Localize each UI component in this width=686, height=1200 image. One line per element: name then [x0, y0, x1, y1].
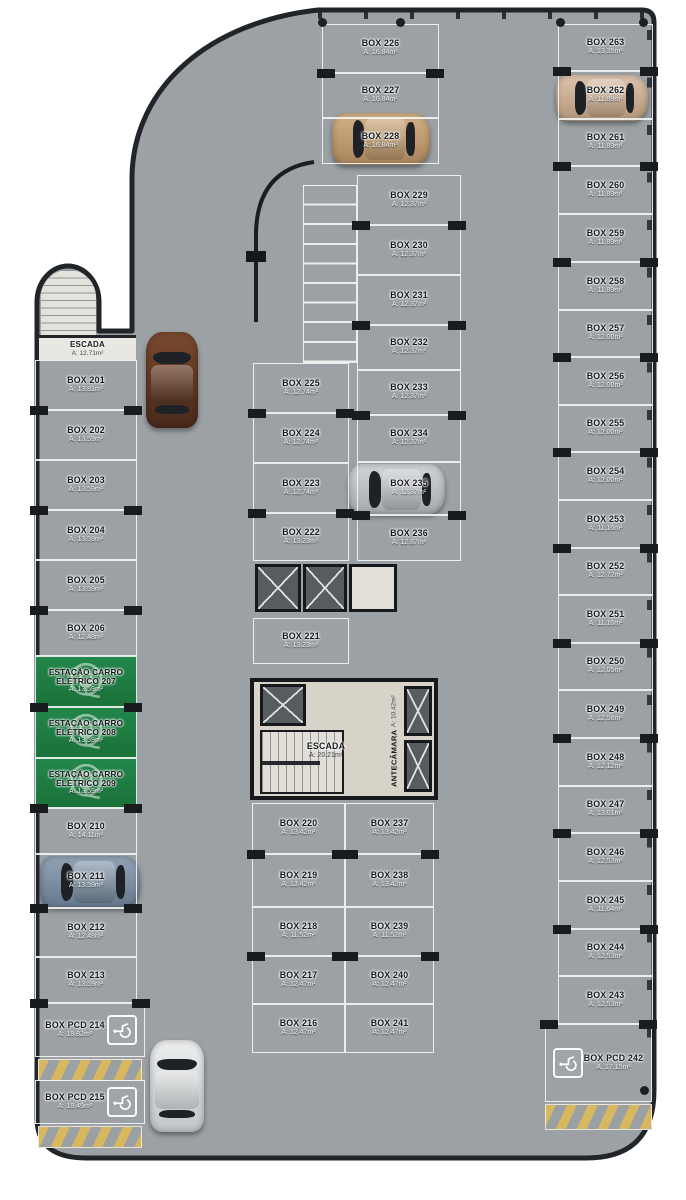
stall-area: A: 16.84m² — [363, 142, 397, 150]
stall-label: BOX 210 — [67, 822, 105, 832]
car-brown — [146, 332, 198, 428]
stall-text: BOX PCD 215A: 19.49m² — [43, 1093, 107, 1111]
stall-text: BOX 244A: 12.53m² — [587, 943, 625, 961]
parking-stall-225: BOX 225A: 12.74m² — [253, 363, 349, 413]
parking-stall-217: BOX 217A: 12.47m² — [252, 956, 345, 1004]
parking-stall-258: BOX 258A: 11.89m² — [558, 262, 653, 310]
stall-area: A: 13.59m² — [69, 981, 103, 989]
stall-area: A: 12.47m² — [281, 1029, 315, 1037]
stall-text: BOX 245A: 11.64m² — [587, 896, 625, 914]
stall-label: BOX 260 — [587, 181, 625, 191]
parking-stall-256: BOX 256A: 12.00m² — [558, 357, 653, 405]
stall-area: A: 12.00m² — [588, 382, 622, 390]
stall-area: A: 13.59m² — [69, 536, 103, 544]
parking-stall-244: BOX 244A: 12.53m² — [558, 929, 653, 976]
parking-stall-232: BOX 232A: 12.37m² — [357, 325, 461, 370]
parking-stall-242: BOX PCD 242A: 17.15m² — [545, 1024, 652, 1102]
car-glass — [153, 352, 191, 364]
stall-text: BOX 219A: 13.42m² — [280, 871, 318, 889]
stall-area: A: 13.59m² — [69, 486, 103, 494]
stall-area: A: 11.52m² — [282, 932, 316, 940]
stall-area: A: 12.37m² — [392, 348, 426, 356]
parking-stall-249: BOX 249A: 12.58m² — [558, 690, 653, 738]
stall-area: A: 13.59m² — [69, 686, 103, 694]
stall-text: BOX 256A: 12.00m² — [587, 372, 625, 390]
wheelchair-icon-box — [107, 1087, 137, 1117]
stall-label: BOX 232 — [390, 338, 428, 348]
stall-text: BOX 252A: 12.72m² — [587, 562, 625, 580]
antecamara: ANTECÂMARA A: 10.42m² — [382, 692, 406, 790]
parking-stall-261: BOX 261A: 11.89m² — [558, 119, 653, 166]
stall-text: BOX 213A: 13.59m² — [67, 971, 105, 989]
stall-label: BOX 250 — [587, 657, 625, 667]
stall-area: A: 11.89m² — [589, 96, 623, 104]
stall-text: BOX 247A: 13.01m² — [587, 800, 625, 818]
stall-text: BOX 257A: 12.00m² — [587, 324, 625, 342]
stall-label: BOX 235 — [390, 479, 428, 489]
column-block — [246, 251, 266, 262]
stall-text: BOX 235A: 12.37m² — [390, 479, 428, 497]
stall-label: BOX 263 — [587, 38, 625, 48]
stall-label: BOX 222 — [282, 528, 320, 538]
stall-area: A: 12.87m² — [392, 539, 426, 547]
parking-stall-247: BOX 247A: 13.01m² — [558, 786, 653, 833]
stall-area: A: 12.58m² — [588, 715, 622, 723]
stall-label: BOX 239 — [371, 922, 409, 932]
stall-text: BOX 232A: 12.37m² — [390, 338, 428, 356]
stall-area: A: 12.00m² — [588, 477, 622, 485]
car-white — [150, 1040, 204, 1132]
stall-area: A: 13.23m² — [284, 538, 318, 546]
stall-label: BOX PCD 214 — [45, 1021, 104, 1031]
parking-stall-210: BOX 210A: 14.11m² — [35, 808, 137, 854]
stall-text: BOX 230A: 12.37m² — [390, 241, 428, 259]
parking-stall-216: BOX 216A: 12.47m² — [252, 1004, 345, 1053]
parking-stall-228: BOX 228A: 16.84m² — [322, 118, 439, 164]
parking-stall-236: BOX 236A: 12.87m² — [357, 515, 461, 561]
stall-area: A: 13.59m² — [69, 586, 103, 594]
stall-text: BOX 218A: 11.52m² — [280, 922, 318, 940]
stall-area: A: 13.42m² — [281, 881, 315, 889]
stall-text: BOX 217A: 12.47m² — [280, 971, 318, 989]
stall-label: BOX 203 — [67, 476, 105, 486]
parking-stall-260: BOX 260A: 11.89m² — [558, 166, 653, 214]
car-glass — [155, 405, 189, 414]
stall-text: BOX 206A: 12.48m² — [67, 624, 105, 642]
stall-label: BOX 238 — [371, 871, 409, 881]
stall-text: BOX 233A: 12.37m² — [390, 383, 428, 401]
stall-text: BOX 261A: 11.89m² — [587, 133, 625, 151]
stall-label: BOX PCD 242 — [584, 1054, 643, 1064]
stall-area: A: 12.53m² — [588, 1001, 622, 1009]
stall-text: BOX 205A: 13.59m² — [67, 576, 105, 594]
garage-floor-plan: ESCADA A: 12.71m² ESCADA A: 20.21m² ANTE… — [0, 0, 686, 1200]
parking-stall-250: BOX 250A: 12.05m² — [558, 643, 653, 690]
stall-text: BOX 223A: 12.74m² — [282, 479, 320, 497]
stall-area: A: 12.47m² — [372, 981, 406, 989]
stall-label: BOX 245 — [587, 896, 625, 906]
stall-text: BOX 221A: 13.23m² — [282, 632, 320, 650]
core-escada-label: ESCADA — [276, 742, 376, 752]
stall-text: BOX 216A: 12.47m² — [280, 1019, 318, 1037]
wheelchair-icon — [112, 1092, 133, 1113]
stair-tower-landing: ESCADA A: 12.71m² — [39, 335, 136, 360]
wheelchair-icon — [112, 1020, 133, 1041]
stall-label: BOX 217 — [280, 971, 318, 981]
parking-stall-227: BOX 227A: 16.84m² — [322, 73, 439, 118]
stall-area: A: 19.82m² — [58, 1031, 92, 1039]
stall-text: BOX 248A: 12.12m² — [587, 753, 625, 771]
parking-stall-238: BOX 238A: 13.42m² — [345, 854, 434, 907]
stall-area: A: 11.64m² — [589, 906, 623, 914]
stall-text: BOX 262A: 11.89m² — [587, 86, 625, 104]
parking-stall-254: BOX 254A: 12.00m² — [558, 452, 653, 500]
parking-stall-223: BOX 223A: 12.74m² — [253, 463, 349, 513]
stall-area: A: 11.16m² — [589, 620, 623, 628]
core-escada: ESCADA A: 20.21m² — [276, 742, 376, 760]
hatched-no-parking-strip — [545, 1104, 652, 1130]
parking-stall-209: ESTAÇÃO CARRO ELÉTRICO 209A: 13.59m² — [35, 758, 137, 808]
stall-area: A: 12.37m² — [392, 393, 426, 401]
parking-stall-214: BOX PCD 214A: 19.82m² — [35, 1003, 145, 1057]
stall-label: BOX 234 — [390, 429, 428, 439]
stall-label: BOX 213 — [67, 971, 105, 981]
stall-label: BOX 223 — [282, 479, 320, 489]
stall-area: A: 12.72m² — [588, 572, 622, 580]
car-roof — [155, 1071, 199, 1109]
stall-label: BOX 254 — [587, 467, 625, 477]
machine-room — [349, 564, 397, 612]
stall-area: A: 13.01m² — [588, 810, 622, 818]
elevator-shaft — [404, 740, 432, 792]
stall-text: ESTAÇÃO CARRO ELÉTRICO 208A: 13.59m² — [40, 719, 132, 745]
stall-label: BOX 233 — [390, 383, 428, 393]
car-roof — [151, 365, 194, 404]
stall-area: A: 11.89m² — [589, 143, 623, 151]
parking-stall-235: BOX 235A: 12.37m² — [357, 462, 461, 515]
stall-text: BOX 236A: 12.87m² — [390, 529, 428, 547]
stall-area: A: 11.16m² — [589, 525, 623, 533]
stall-text: BOX 222A: 13.23m² — [282, 528, 320, 546]
pillar — [318, 18, 327, 27]
stall-text: BOX 211A: 13.59m² — [67, 872, 104, 890]
stall-area: A: 11.89m² — [589, 239, 623, 247]
stall-label: BOX 220 — [280, 819, 318, 829]
stall-label: BOX 249 — [587, 705, 625, 715]
parking-stall-253: BOX 253A: 11.16m² — [558, 500, 653, 548]
stall-area: A: 12.48m² — [69, 933, 103, 941]
stall-area: A: 16.84m² — [363, 49, 397, 57]
parking-stall-255: BOX 255A: 12.00m² — [558, 405, 653, 452]
parking-stall-240: BOX 240A: 12.47m² — [345, 956, 434, 1004]
stall-text: BOX 234A: 12.37m² — [390, 429, 428, 447]
stall-area: A: 11.52m² — [373, 932, 407, 940]
parking-stall-212: BOX 212A: 12.48m² — [35, 908, 137, 957]
stall-area: A: 12.00m² — [588, 429, 622, 437]
stall-label: ESTAÇÃO CARRO ELÉTRICO 207 — [40, 668, 132, 686]
stall-text: BOX 203A: 13.59m² — [67, 476, 105, 494]
parking-stall-226: BOX 226A: 16.84m² — [322, 24, 439, 73]
stall-area: A: 13.59m² — [69, 737, 103, 745]
stall-label: BOX 226 — [362, 39, 400, 49]
stall-area: A: 13.59m² — [69, 436, 103, 444]
stall-text: BOX 210A: 14.11m² — [67, 822, 105, 840]
stall-text: BOX 254A: 12.00m² — [587, 467, 625, 485]
stall-label: BOX 221 — [282, 632, 320, 642]
parking-stall-221: BOX 221A: 13.23m² — [253, 618, 349, 664]
stall-area: A: 12.37m² — [392, 251, 426, 259]
stall-label: BOX 252 — [587, 562, 625, 572]
parking-stall-203: BOX 203A: 13.59m² — [35, 460, 137, 510]
stall-area: A: 16.84m² — [363, 96, 397, 104]
stall-label: BOX 247 — [587, 800, 625, 810]
stall-label: BOX 205 — [67, 576, 105, 586]
stall-label: BOX 227 — [362, 86, 400, 96]
stall-area: A: 17.15m² — [596, 1064, 630, 1072]
parking-stall-259: BOX 259A: 11.89m² — [558, 214, 653, 262]
stall-label: BOX 237 — [371, 819, 409, 829]
stall-text: BOX 239A: 11.52m² — [371, 922, 409, 940]
stair-tower-label: ESCADA — [70, 341, 105, 350]
parking-stall-207: ESTAÇÃO CARRO ELÉTRICO 207A: 13.59m² — [35, 656, 137, 707]
stall-area: A: 12.05m² — [588, 667, 622, 675]
stall-label: BOX 243 — [587, 991, 625, 1001]
stall-label: ESTAÇÃO CARRO ELÉTRICO 209 — [40, 770, 132, 788]
parking-stall-231: BOX 231A: 12.37m² — [357, 275, 461, 325]
stall-text: BOX 226A: 16.84m² — [362, 39, 400, 57]
stall-label: BOX 204 — [67, 526, 105, 536]
top-wall-columns — [318, 12, 648, 19]
stall-text: BOX 243A: 12.53m² — [587, 991, 625, 1009]
stall-text: BOX 238A: 13.42m² — [371, 871, 409, 889]
stall-label: BOX 224 — [282, 429, 320, 439]
stair-tower — [41, 270, 96, 336]
stall-text: BOX PCD 214A: 19.82m² — [43, 1021, 107, 1039]
wheelchair-icon-box — [553, 1048, 583, 1078]
antecamara-label: ANTECÂMARA — [390, 729, 399, 786]
parking-stall-202: BOX 202A: 13.59m² — [35, 410, 137, 460]
stall-label: BOX 255 — [587, 419, 625, 429]
stall-label: BOX 229 — [390, 191, 428, 201]
stall-area: A: 13.42m² — [281, 829, 315, 837]
stall-area: A: 13.23m² — [284, 642, 318, 650]
stall-label: BOX 248 — [587, 753, 625, 763]
stall-area: A: 12.37m² — [392, 489, 426, 497]
parking-stall-243: BOX 243A: 12.53m² — [558, 976, 653, 1024]
stall-label: BOX 259 — [587, 229, 625, 239]
stall-label: BOX 212 — [67, 923, 105, 933]
stall-area: A: 13.81m² — [69, 386, 103, 394]
parking-stall-263: BOX 263A: 13.35m² — [558, 24, 653, 71]
parking-stall-213: BOX 213A: 13.59m² — [35, 957, 137, 1003]
stall-text: BOX 227A: 16.84m² — [362, 86, 400, 104]
stall-text: BOX 231A: 12.37m² — [390, 291, 428, 309]
stall-label: BOX 262 — [587, 86, 625, 96]
stall-text: BOX 263A: 13.35m² — [587, 38, 625, 56]
stall-text: BOX 260A: 11.89m² — [587, 181, 625, 199]
stall-area: A: 12.74m² — [284, 439, 318, 447]
stall-label: BOX 230 — [390, 241, 428, 251]
stall-label: BOX 218 — [280, 922, 318, 932]
elevator-shaft — [404, 686, 432, 736]
stall-text: BOX 202A: 13.59m² — [67, 426, 105, 444]
stall-label: BOX 201 — [67, 376, 105, 386]
stall-label: BOX 261 — [587, 133, 625, 143]
car-glass — [157, 1059, 197, 1070]
stall-area: A: 12.74m² — [284, 389, 318, 397]
parking-stall-251: BOX 251A: 11.16m² — [558, 595, 653, 643]
stall-label: BOX 241 — [371, 1019, 409, 1029]
stall-text: BOX 201A: 13.81m² — [67, 376, 105, 394]
stall-text: BOX 259A: 11.89m² — [587, 229, 625, 247]
stall-area: A: 12.48m² — [69, 634, 103, 642]
stall-text: BOX 251A: 11.16m² — [587, 610, 625, 628]
stair-rail — [262, 761, 320, 765]
parking-stall-219: BOX 219A: 13.42m² — [252, 854, 345, 907]
stall-text: BOX 225A: 12.74m² — [282, 379, 320, 397]
parking-stall-208: ESTAÇÃO CARRO ELÉTRICO 208A: 13.59m² — [35, 707, 137, 758]
stall-text: BOX 228A: 16.84m² — [362, 132, 400, 150]
stall-text: BOX 229A: 12.37m² — [390, 191, 428, 209]
hatched-no-parking-strip — [38, 1126, 142, 1148]
stall-area: A: 11.89m² — [589, 191, 623, 199]
stall-text: BOX 237A: 13.42m² — [371, 819, 409, 837]
stall-area: A: 12.37m² — [392, 439, 426, 447]
parking-stall-233: BOX 233A: 12.37m² — [357, 370, 461, 415]
parking-stall-201: BOX 201A: 13.81m² — [35, 360, 137, 410]
parking-stall-239: BOX 239A: 11.52m² — [345, 907, 434, 956]
stall-text: BOX 253A: 11.16m² — [587, 515, 625, 533]
parking-stall-262: BOX 262A: 11.89m² — [558, 71, 653, 119]
stall-text: BOX 240A: 12.47m² — [371, 971, 409, 989]
stall-label: ESTAÇÃO CARRO ELÉTRICO 208 — [40, 719, 132, 737]
stall-label: BOX PCD 215 — [45, 1093, 104, 1103]
stall-text: BOX 249A: 12.58m² — [587, 705, 625, 723]
stall-text: BOX 250A: 12.05m² — [587, 657, 625, 675]
stall-area: A: 14.11m² — [69, 832, 103, 840]
stall-label: BOX 240 — [371, 971, 409, 981]
parking-stall-229: BOX 229A: 12.37m² — [357, 175, 461, 225]
stall-area: A: 12.12m² — [588, 763, 622, 771]
parking-stall-237: BOX 237A: 13.42m² — [345, 803, 434, 854]
stall-label: BOX 225 — [282, 379, 320, 389]
hatched-no-parking-strip — [38, 1059, 142, 1081]
stall-area: A: 12.53m² — [588, 953, 622, 961]
parking-stall-215: BOX PCD 215A: 19.49m² — [35, 1080, 145, 1124]
stall-text: BOX PCD 242A: 17.15m² — [583, 1054, 644, 1072]
wheelchair-icon — [558, 1053, 579, 1074]
stall-area: A: 12.74m² — [284, 489, 318, 497]
stall-area: A: 13.42m² — [372, 881, 406, 889]
stall-label: BOX 228 — [362, 132, 400, 142]
pillar — [639, 18, 648, 27]
stall-text: BOX 204A: 13.59m² — [67, 526, 105, 544]
stair-tower-area: A: 12.71m² — [72, 350, 104, 358]
stall-text: BOX 212A: 12.48m² — [67, 923, 105, 941]
parking-stall-211: BOX 211A: 13.59m² — [35, 854, 137, 908]
stall-label: BOX 251 — [587, 610, 625, 620]
stall-label: BOX 231 — [390, 291, 428, 301]
core-stairs — [260, 730, 344, 794]
parking-stall-218: BOX 218A: 11.52m² — [252, 907, 345, 956]
stall-area: A: 13.59m² — [69, 882, 103, 890]
stall-area: A: 12.47m² — [281, 981, 315, 989]
stall-label: BOX 253 — [587, 515, 625, 525]
stall-area: A: 12.37m² — [392, 301, 426, 309]
parking-stall-241: BOX 241A: 12.47m² — [345, 1004, 434, 1053]
stall-label: BOX 256 — [587, 372, 625, 382]
wheelchair-icon-box — [107, 1015, 137, 1045]
stall-area: A: 12.00m² — [588, 334, 622, 342]
stall-area: A: 11.89m² — [589, 287, 623, 295]
parking-stall-248: BOX 248A: 12.12m² — [558, 738, 653, 786]
stall-area: A: 13.59m² — [69, 788, 103, 796]
stall-text: BOX 258A: 11.89m² — [587, 277, 625, 295]
stall-text: BOX 220A: 13.42m² — [280, 819, 318, 837]
parking-stall-220: BOX 220A: 13.42m² — [252, 803, 345, 854]
stall-area: A: 13.35m² — [588, 48, 622, 56]
stall-label: BOX 216 — [280, 1019, 318, 1029]
pillar — [640, 1086, 649, 1095]
parking-stall-234: BOX 234A: 12.37m² — [357, 415, 461, 462]
stall-label: BOX 211 — [67, 872, 104, 882]
parking-stall-205: BOX 205A: 13.59m² — [35, 560, 137, 610]
antecamara-area: A: 10.42m² — [391, 695, 398, 727]
stall-area: A: 12.47m² — [372, 1029, 406, 1037]
parking-stall-257: BOX 257A: 12.00m² — [558, 310, 653, 357]
elevator-shaft — [255, 564, 301, 612]
stall-area: A: 12.37m² — [392, 201, 426, 209]
stall-label: BOX 257 — [587, 324, 625, 334]
stall-text: BOX 255A: 12.00m² — [587, 419, 625, 437]
stall-label: BOX 244 — [587, 943, 625, 953]
stall-label: BOX 206 — [67, 624, 105, 634]
pillar — [556, 18, 565, 27]
stall-text: BOX 246A: 12.53m² — [587, 848, 625, 866]
stall-label: BOX 246 — [587, 848, 625, 858]
parking-stall-204: BOX 204A: 13.59m² — [35, 510, 137, 560]
stall-text: BOX 241A: 12.47m² — [371, 1019, 409, 1037]
car-glass — [159, 1110, 195, 1118]
parking-stall-222: BOX 222A: 13.23m² — [253, 513, 349, 561]
stall-label: BOX 202 — [67, 426, 105, 436]
elevator-shaft — [260, 684, 306, 726]
parking-stall-206: BOX 206A: 12.48m² — [35, 610, 137, 656]
stall-text: BOX 224A: 12.74m² — [282, 429, 320, 447]
stall-area: A: 12.53m² — [588, 858, 622, 866]
stall-label: BOX 219 — [280, 871, 318, 881]
stall-text: ESTAÇÃO CARRO ELÉTRICO 207A: 13.59m² — [40, 668, 132, 694]
parking-stall-230: BOX 230A: 12.37m² — [357, 225, 461, 275]
core-escada-area: A: 20.21m² — [276, 752, 376, 760]
parking-stall-252: BOX 252A: 12.72m² — [558, 548, 653, 595]
stall-label: BOX 258 — [587, 277, 625, 287]
small-stall-rack — [303, 185, 357, 363]
stall-label: BOX 236 — [390, 529, 428, 539]
parking-stall-224: BOX 224A: 12.74m² — [253, 413, 349, 463]
stall-area: A: 13.42m² — [372, 829, 406, 837]
pillar — [396, 18, 405, 27]
parking-stall-245: BOX 245A: 11.64m² — [558, 881, 653, 929]
stall-area: A: 19.49m² — [58, 1103, 92, 1111]
elevator-shaft — [303, 564, 347, 612]
stall-text: ESTAÇÃO CARRO ELÉTRICO 209A: 13.59m² — [40, 770, 132, 796]
parking-stall-246: BOX 246A: 12.53m² — [558, 833, 653, 881]
